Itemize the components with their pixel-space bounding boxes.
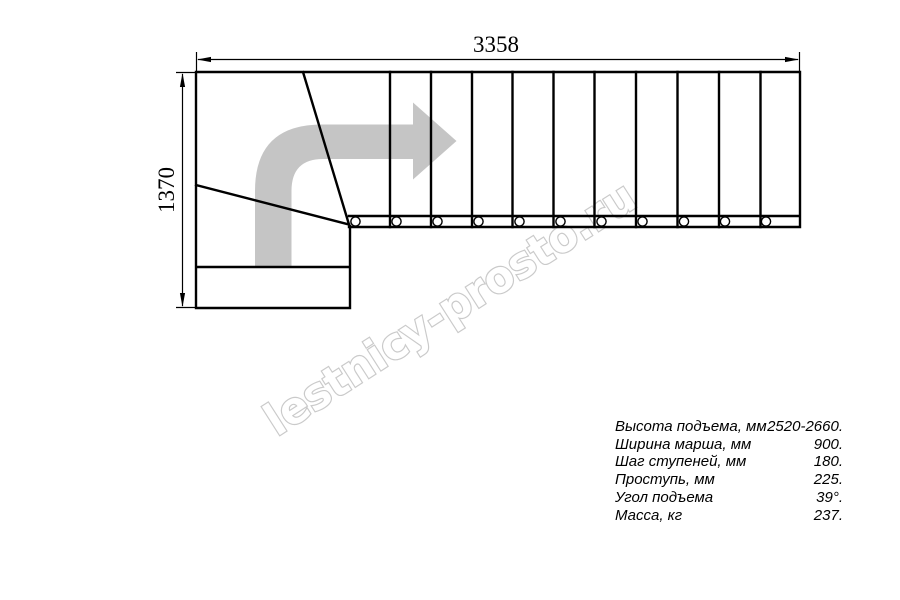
tread-circle — [474, 217, 483, 226]
tread-circle — [720, 217, 729, 226]
dimension-width-label: 3358 — [473, 32, 519, 57]
tread-circle-marks — [351, 217, 771, 226]
tread-circle — [392, 217, 401, 226]
spec-row-tread: Проступь, мм 225. — [615, 471, 843, 489]
tread-circle — [638, 217, 647, 226]
spec-value: 180. — [814, 453, 843, 471]
tread-circle — [679, 217, 688, 226]
staircase-plan-page: lestnicy-prosto.ru — [0, 0, 900, 600]
tread-circle — [761, 217, 770, 226]
spec-value: 237. — [814, 507, 843, 525]
tread-circle — [556, 217, 565, 226]
spec-row-width: Ширина марша, мм 900. — [615, 436, 843, 454]
spec-label: Ширина марша, мм — [615, 436, 751, 454]
spec-label: Высота подъема, мм — [615, 418, 767, 436]
spec-row-height: Высота подъема, мм 2520-2660. — [615, 418, 843, 436]
spec-label: Шаг ступеней, мм — [615, 453, 746, 471]
spec-table: Высота подъема, мм 2520-2660. Ширина мар… — [615, 418, 843, 524]
spec-label: Масса, кг — [615, 507, 682, 525]
dim-arrow-right-icon — [785, 57, 799, 62]
tread-circle — [515, 217, 524, 226]
direction-arrow-icon — [255, 103, 457, 268]
dimension-height-label: 1370 — [154, 167, 179, 213]
dim-arrow-up-icon — [180, 73, 185, 87]
spec-row-angle: Угол подъема 39°. — [615, 489, 843, 507]
spec-row-mass: Масса, кг 237. — [615, 507, 843, 525]
tread-circle — [433, 217, 442, 226]
spec-label: Угол подъема — [615, 489, 713, 507]
spec-value: 225. — [814, 471, 843, 489]
spec-value: 2520-2660. — [767, 418, 843, 436]
spec-value: 39°. — [816, 489, 843, 507]
dim-arrow-left-icon — [197, 57, 211, 62]
tread-circle — [597, 217, 606, 226]
dim-arrow-down-icon — [180, 293, 185, 307]
spec-row-step: Шаг ступеней, мм 180. — [615, 453, 843, 471]
tread-circle — [351, 217, 360, 226]
spec-label: Проступь, мм — [615, 471, 715, 489]
spec-value: 900. — [814, 436, 843, 454]
